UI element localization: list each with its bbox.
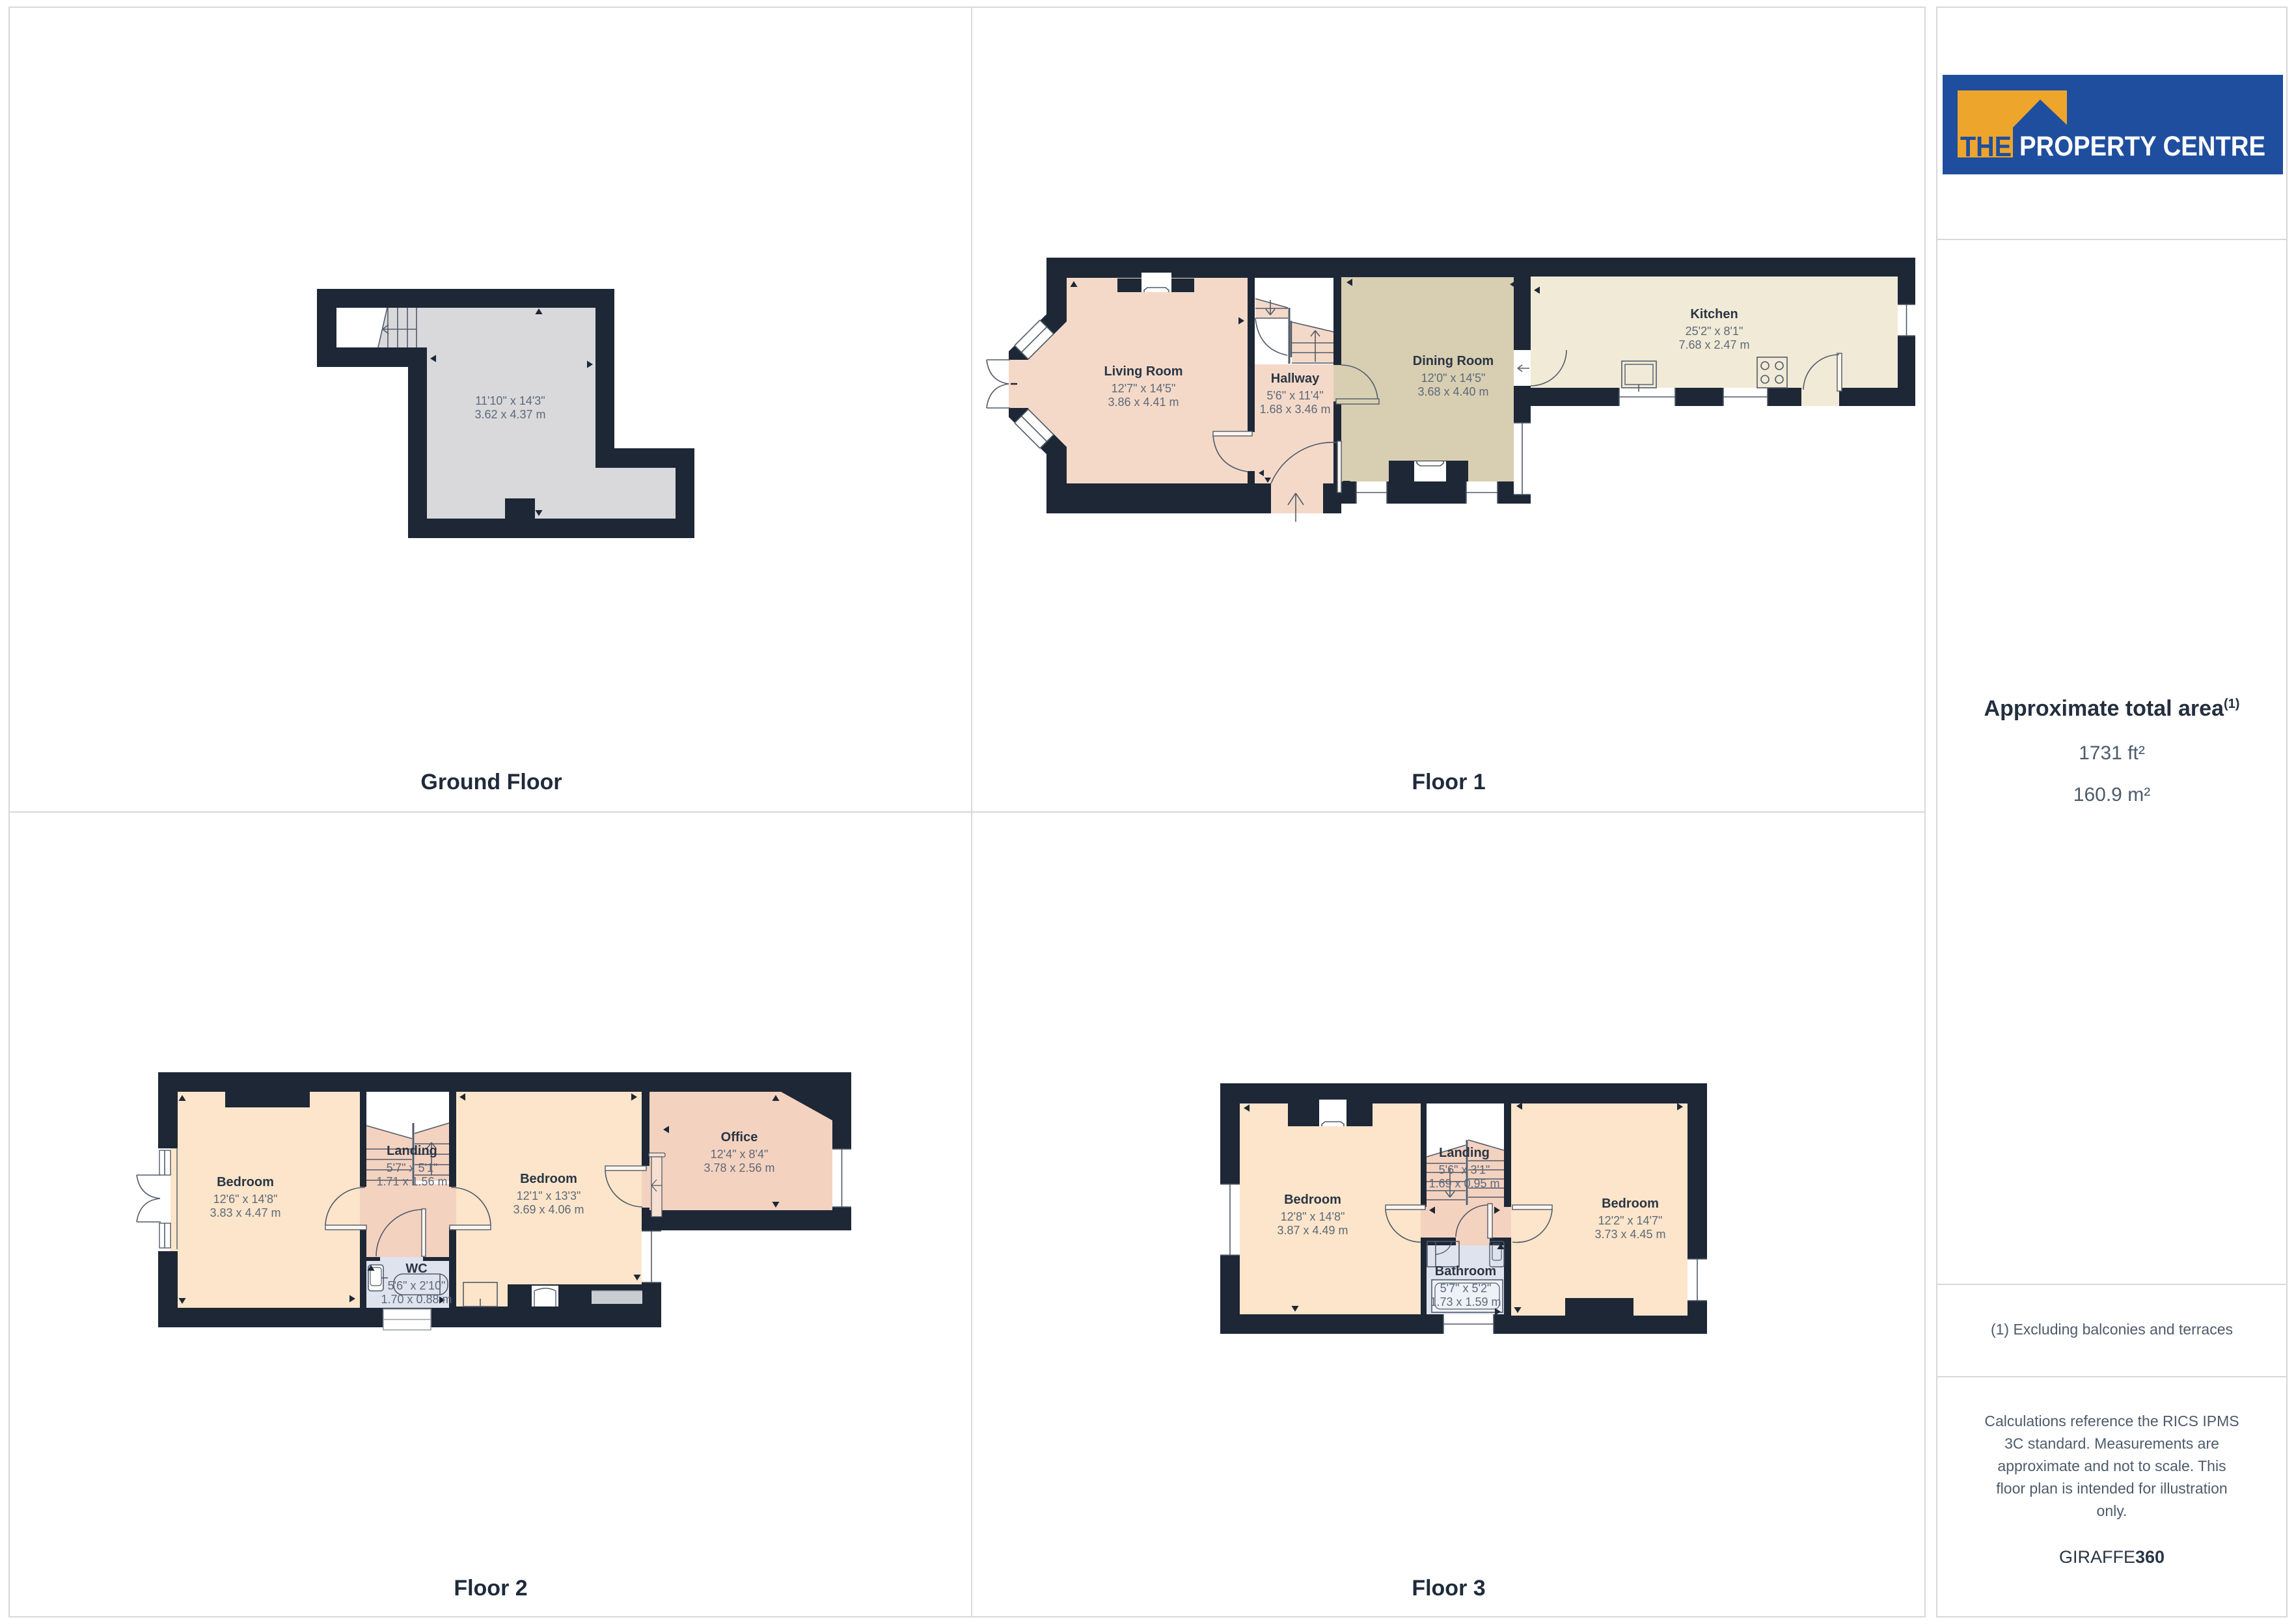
svg-text:1.70 x 0.88 m: 1.70 x 0.88 m: [381, 1293, 452, 1306]
svg-text:5'6" x 2'10": 5'6" x 2'10": [388, 1279, 446, 1292]
svg-text:12'4" x 8'4": 12'4" x 8'4": [711, 1148, 769, 1161]
svg-text:1.71 x 1.56 m: 1.71 x 1.56 m: [376, 1175, 447, 1188]
svg-text:3.86 x 4.41 m: 3.86 x 4.41 m: [1108, 396, 1179, 409]
svg-text:(1) Excluding balconies and te: (1) Excluding balconies and terraces: [1991, 1321, 2233, 1338]
svg-text:12'0" x 14'5": 12'0" x 14'5": [1421, 372, 1486, 385]
svg-text:PROPERTY CENTRE: PROPERTY CENTRE: [2019, 131, 2265, 162]
svg-text:1.69 x 0.95 m: 1.69 x 0.95 m: [1428, 1177, 1499, 1190]
svg-text:3C standard. Measurements are: 3C standard. Measurements are: [2004, 1435, 2219, 1452]
svg-text:3.69 x 4.06 m: 3.69 x 4.06 m: [513, 1203, 584, 1216]
svg-text:Landing: Landing: [387, 1144, 437, 1158]
svg-text:5'7" x 5'2": 5'7" x 5'2": [1440, 1282, 1492, 1295]
svg-text:1731 ft²: 1731 ft²: [2079, 742, 2145, 764]
svg-text:WC: WC: [405, 1262, 427, 1276]
svg-text:3.87 x 4.49 m: 3.87 x 4.49 m: [1277, 1224, 1348, 1237]
svg-text:Calculations reference the RIC: Calculations reference the RICS IPMS: [1984, 1413, 2239, 1429]
svg-text:3.78 x 2.56 m: 3.78 x 2.56 m: [704, 1161, 774, 1174]
svg-text:Dining Room: Dining Room: [1413, 354, 1494, 368]
svg-text:GIRAFFE360: GIRAFFE360: [2059, 1547, 2165, 1567]
svg-text:12'6" x 14'8": 12'6" x 14'8": [213, 1193, 278, 1206]
svg-text:25'2" x 8'1": 25'2" x 8'1": [1686, 325, 1743, 338]
svg-text:5'6" x 11'4": 5'6" x 11'4": [1266, 389, 1323, 402]
svg-text:Bedroom: Bedroom: [520, 1172, 577, 1186]
svg-text:7.68 x 2.47 m: 7.68 x 2.47 m: [1678, 338, 1749, 351]
svg-text:5'6" x 3'1": 5'6" x 3'1": [1439, 1163, 1490, 1176]
svg-text:Bedroom: Bedroom: [217, 1175, 274, 1189]
svg-text:3.73 x 4.45 m: 3.73 x 4.45 m: [1594, 1228, 1665, 1241]
svg-text:12'1" x 13'3": 12'1" x 13'3": [517, 1189, 581, 1202]
svg-text:Ground Floor: Ground Floor: [420, 770, 562, 794]
svg-text:Landing: Landing: [1439, 1146, 1490, 1160]
svg-text:only.: only.: [2097, 1502, 2127, 1519]
svg-text:1.68 x 3.46 m: 1.68 x 3.46 m: [1259, 403, 1330, 416]
svg-text:3.68 x 4.40 m: 3.68 x 4.40 m: [1417, 385, 1488, 398]
svg-text:5'7" x 5'1": 5'7" x 5'1": [387, 1161, 438, 1174]
svg-text:3.83 x 4.47 m: 3.83 x 4.47 m: [210, 1206, 280, 1219]
svg-text:Floor 2: Floor 2: [454, 1576, 527, 1601]
svg-text:Floor 3: Floor 3: [1412, 1576, 1485, 1601]
svg-text:THE: THE: [1960, 131, 2012, 163]
svg-text:12'7" x 14'5": 12'7" x 14'5": [1112, 382, 1176, 395]
svg-text:Office: Office: [721, 1130, 758, 1144]
svg-text:Hallway: Hallway: [1271, 372, 1320, 386]
svg-text:approximate and not to scale.: approximate and not to scale. This: [1997, 1457, 2226, 1474]
svg-text:3.62 x 4.37 m: 3.62 x 4.37 m: [474, 408, 545, 421]
svg-text:160.9 m²: 160.9 m²: [2073, 784, 2150, 805]
svg-text:12'8" x 14'8": 12'8" x 14'8": [1281, 1210, 1345, 1223]
svg-text:Bedroom: Bedroom: [1284, 1193, 1341, 1207]
svg-text:Living Room: Living Room: [1104, 364, 1182, 379]
svg-text:Kitchen: Kitchen: [1690, 307, 1738, 321]
svg-text:Bathroom: Bathroom: [1435, 1264, 1496, 1279]
svg-text:Bedroom: Bedroom: [1602, 1197, 1659, 1211]
svg-text:floor plan is intended for ill: floor plan is intended for illustration: [1996, 1480, 2227, 1497]
svg-text:12'2" x 14'7": 12'2" x 14'7": [1598, 1214, 1663, 1227]
svg-text:Approximate total area(1): Approximate total area(1): [1984, 696, 2240, 721]
svg-text:11'10" x 14'3": 11'10" x 14'3": [475, 394, 545, 407]
svg-text:1.73 x 1.59 m: 1.73 x 1.59 m: [1430, 1295, 1501, 1308]
svg-text:Floor 1: Floor 1: [1412, 770, 1485, 794]
